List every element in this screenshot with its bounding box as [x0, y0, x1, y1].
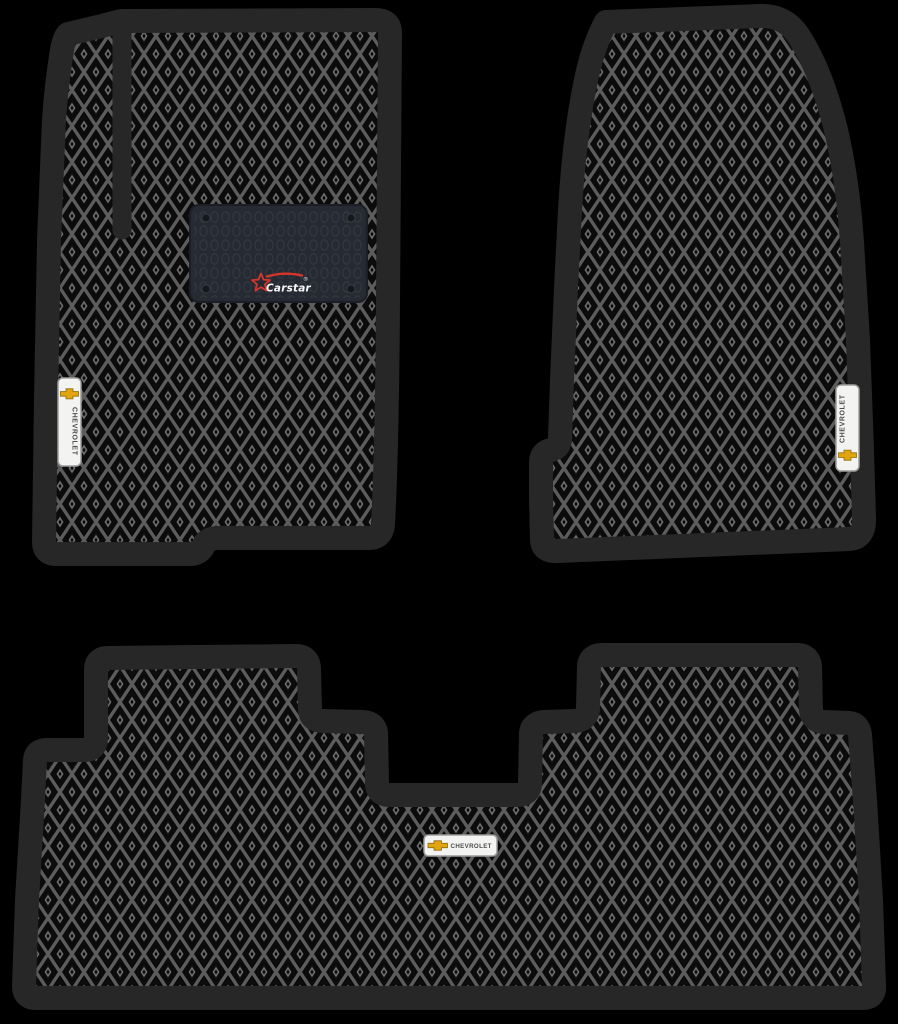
screw-icon [202, 214, 210, 222]
registered-mark: ® [303, 276, 309, 283]
rear-mat-surface [24, 655, 874, 998]
product-image-stage: Carstar ® CHEVROLET CHEVROLET [0, 0, 898, 1024]
chevrolet-badge-driver: CHEVROLET [58, 378, 81, 466]
badge-make-label: CHEVROLET [71, 407, 78, 456]
chevrolet-badge-passenger: CHEVROLET [836, 385, 859, 471]
badge-make-label: CHEVROLET [451, 843, 492, 850]
rear-mat: CHEVROLET [24, 655, 874, 998]
carstar-label: Carstar [266, 283, 312, 295]
front-driver-mat: Carstar ® CHEVROLET [44, 20, 390, 554]
carstar-patch: Carstar ® [190, 205, 367, 302]
front-passenger-mat-surface [541, 16, 864, 551]
floor-mats-product-image: Carstar ® CHEVROLET CHEVROLET [0, 0, 898, 1024]
front-passenger-mat: CHEVROLET [541, 16, 864, 551]
screw-icon [202, 285, 210, 293]
badge-make-label: CHEVROLET [840, 394, 847, 443]
screw-icon [347, 214, 355, 222]
screw-icon [347, 285, 355, 293]
chevrolet-badge-rear: CHEVROLET [424, 835, 497, 856]
